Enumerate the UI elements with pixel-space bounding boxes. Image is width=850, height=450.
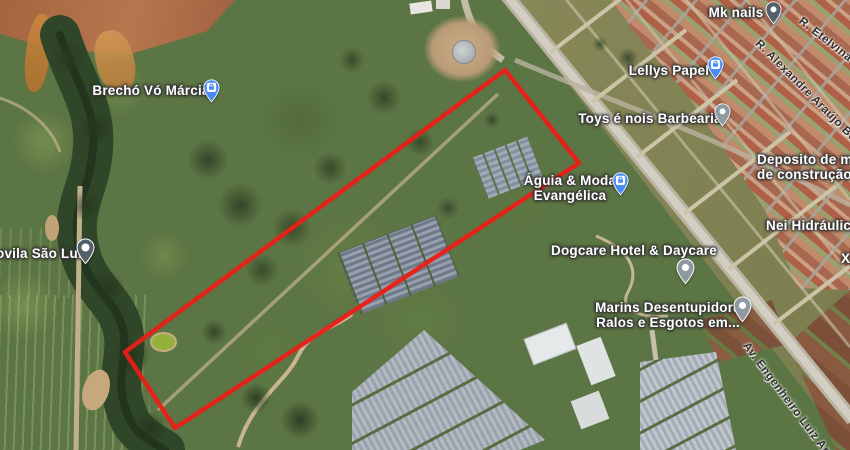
poi-text: Marins Desentupidora	[595, 301, 741, 316]
poi-label-lellys-papel[interactable]: Lellys Papel	[629, 64, 709, 79]
poi-text: Toys é nois Barbearia	[578, 112, 722, 127]
pond	[150, 332, 177, 352]
place-pin-icon[interactable]	[76, 238, 95, 265]
poi-text: Ralos e Esgotos em...	[595, 316, 741, 331]
poi-text: Dogcare Hotel & Daycare	[551, 244, 717, 259]
poi-text: X	[841, 252, 850, 267]
shopping-pin-icon[interactable]	[612, 172, 629, 196]
building	[436, 0, 450, 9]
poi-text: Águia & Moda	[524, 174, 616, 189]
round-tank-structure	[452, 40, 476, 64]
poi-text: Deposito de ma	[757, 153, 850, 168]
poi-label-marins-desentupidora[interactable]: Marins Desentupidora Ralos e Esgotos em.…	[595, 301, 741, 330]
place-pin-icon[interactable]	[714, 103, 731, 127]
poi-label-mk-nails[interactable]: Mk nails	[709, 6, 764, 21]
poi-text: Mk nails	[709, 6, 764, 21]
poi-label-aguia-moda-evangelica[interactable]: Águia & Moda Evangélica	[524, 174, 616, 203]
poi-label-toys-e-nois-barbearia[interactable]: Toys é nois Barbearia	[578, 112, 722, 127]
poi-label-deposito-construcao[interactable]: Deposito de ma de construção bo	[757, 153, 850, 182]
poi-text: de construção bo	[757, 168, 850, 183]
shopping-pin-icon[interactable]	[707, 56, 724, 80]
poi-text: Evangélica	[524, 189, 616, 204]
shopping-pin-icon[interactable]	[203, 79, 220, 103]
place-pin-icon[interactable]	[676, 258, 695, 285]
poi-label-nei-hidraulica[interactable]: Nei Hidráulica e	[766, 219, 850, 234]
place-pin-icon[interactable]	[733, 296, 752, 323]
poi-text: Nei Hidráulica e	[766, 219, 850, 234]
poi-label-dogcare-hotel-daycare[interactable]: Dogcare Hotel & Daycare	[551, 244, 717, 259]
poi-label-brecho-vo-marcia[interactable]: Brechó Vó Márcia	[92, 84, 209, 99]
poi-text: Brechó Vó Márcia	[92, 84, 209, 99]
poi-label-clipped-x: X	[841, 252, 850, 267]
place-pin-icon[interactable]	[765, 1, 782, 25]
poi-text: Lellys Papel	[629, 64, 709, 79]
map-canvas[interactable]: R. Etelvina C R. Alexandre Araújo Belchi…	[0, 0, 850, 450]
